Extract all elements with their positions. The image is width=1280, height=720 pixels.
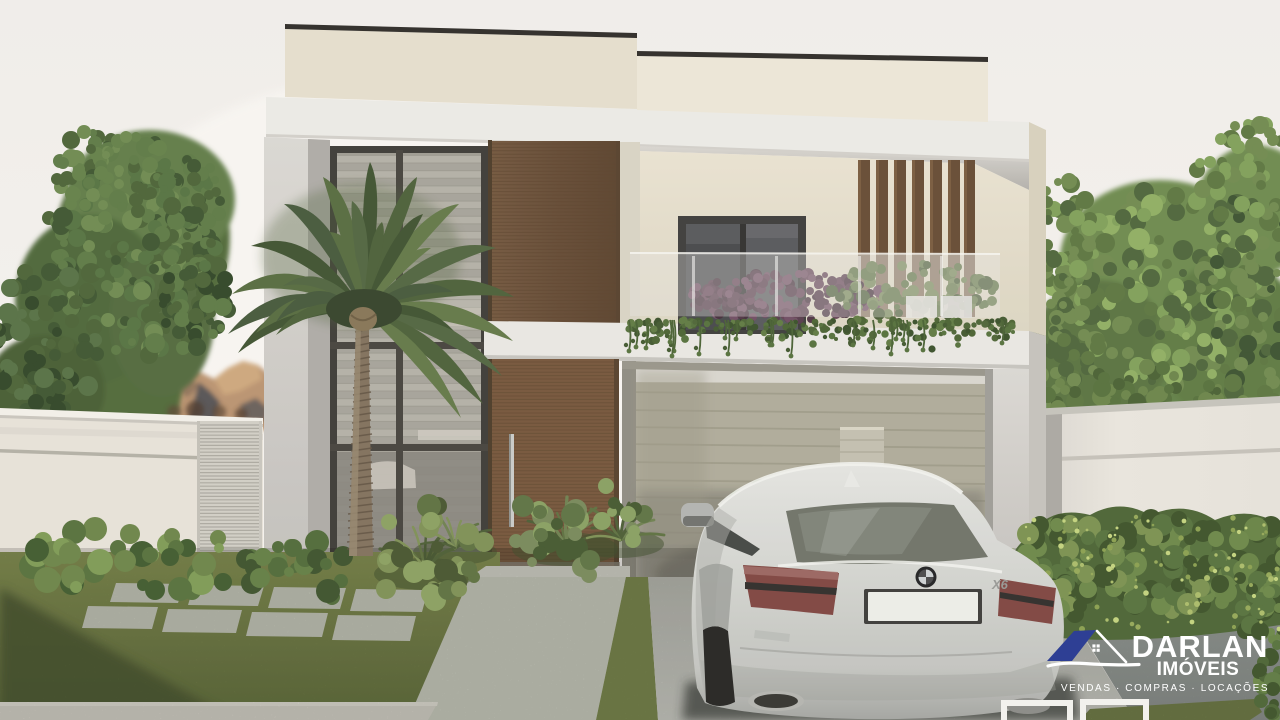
svg-text:IMÓVEIS: IMÓVEIS — [1157, 658, 1240, 680]
svg-text:VENDAS · COMPRAS · LOCAÇÕES: VENDAS · COMPRAS · LOCAÇÕES — [1061, 681, 1269, 694]
